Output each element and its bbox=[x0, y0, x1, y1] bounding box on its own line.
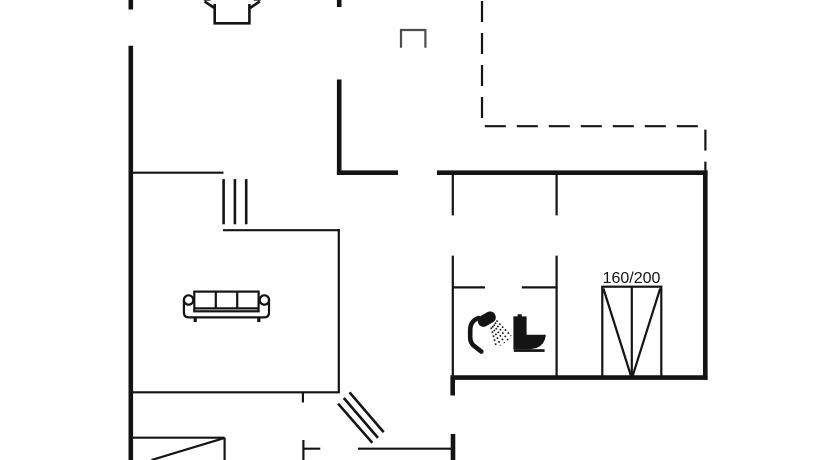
svg-text:160/200: 160/200 bbox=[603, 270, 661, 287]
